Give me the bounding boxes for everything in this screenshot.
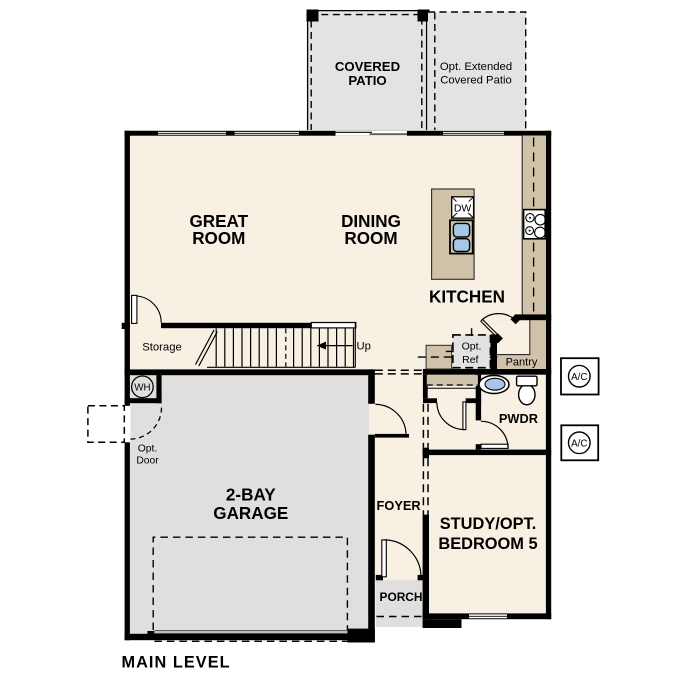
- svg-text:Covered Patio: Covered Patio: [440, 75, 512, 87]
- svg-text:Pantry: Pantry: [506, 356, 538, 368]
- svg-text:DW: DW: [454, 202, 472, 214]
- svg-text:GARAGE: GARAGE: [213, 504, 288, 523]
- svg-text:Opt.: Opt.: [462, 341, 482, 353]
- svg-text:WH: WH: [134, 382, 150, 393]
- svg-text:KITCHEN: KITCHEN: [429, 288, 505, 307]
- svg-text:COVERED: COVERED: [335, 59, 400, 74]
- svg-text:PORCH: PORCH: [380, 590, 423, 604]
- svg-text:Up: Up: [357, 341, 371, 353]
- svg-text:STUDY/OPT.: STUDY/OPT.: [440, 515, 537, 533]
- svg-text:BEDROOM 5: BEDROOM 5: [438, 535, 537, 553]
- svg-text:Storage: Storage: [142, 341, 182, 353]
- svg-text:Ref: Ref: [462, 354, 478, 366]
- svg-text:2-BAY: 2-BAY: [226, 486, 276, 505]
- svg-text:PWDR: PWDR: [499, 411, 538, 426]
- svg-text:ROOM: ROOM: [344, 229, 397, 248]
- svg-text:PATIO: PATIO: [348, 73, 386, 88]
- svg-text:MAIN LEVEL: MAIN LEVEL: [122, 653, 231, 671]
- svg-text:Opt.: Opt.: [138, 444, 157, 455]
- svg-text:Door: Door: [136, 456, 159, 467]
- svg-text:ROOM: ROOM: [192, 229, 245, 248]
- svg-text:Opt. Extended: Opt. Extended: [440, 61, 512, 73]
- svg-text:A/C: A/C: [571, 438, 587, 449]
- svg-text:FOYER: FOYER: [377, 498, 421, 513]
- svg-text:A/C: A/C: [571, 372, 587, 383]
